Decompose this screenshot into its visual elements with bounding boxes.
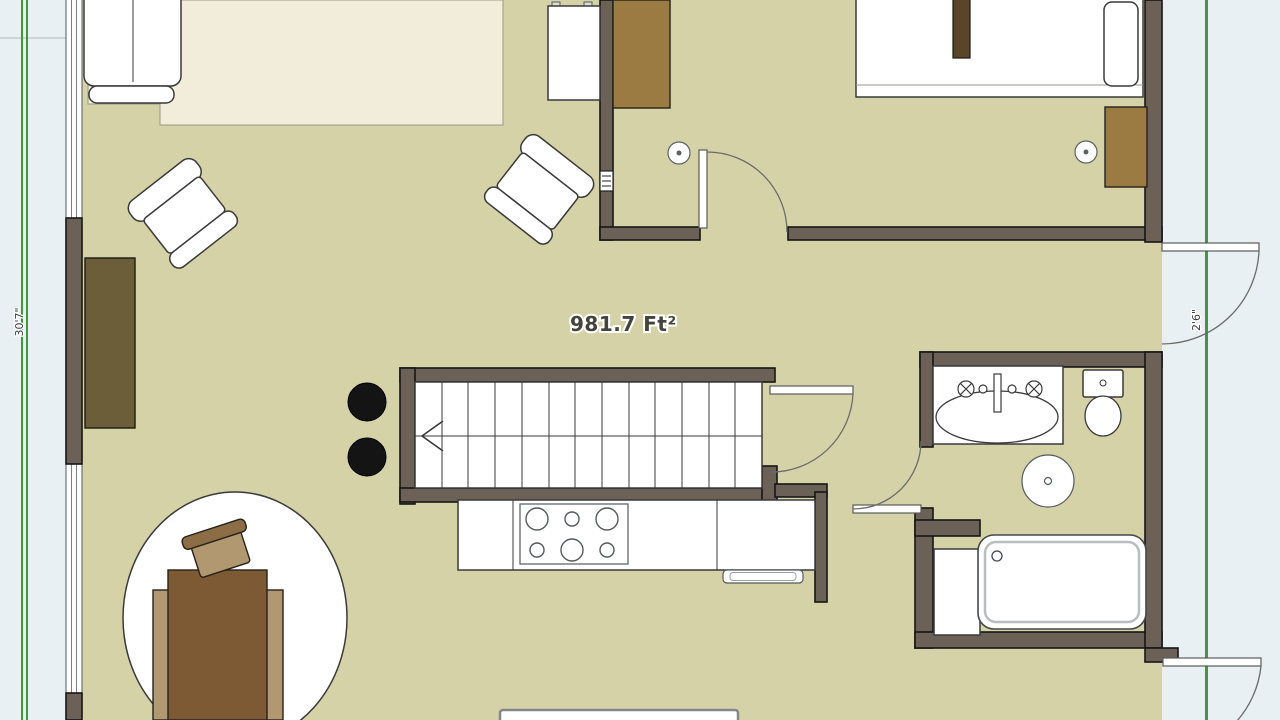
wall-bath-left-upper[interactable] (920, 352, 933, 447)
console-table[interactable] (548, 2, 600, 100)
pillow (1104, 2, 1138, 86)
bottom-table[interactable] (500, 710, 738, 720)
staircase[interactable] (415, 382, 762, 488)
bar-stool[interactable] (348, 438, 386, 476)
bathtub[interactable] (978, 535, 1146, 629)
bookshelf[interactable] (85, 258, 135, 428)
floorplan-drawing: 981.7 Ft² 30'7" 2'6" (0, 0, 1280, 720)
bathroom-cabinet[interactable] (934, 549, 980, 635)
kitchen-counter[interactable] (458, 500, 815, 570)
wall-bath-top[interactable] (920, 352, 1162, 367)
dresser[interactable] (613, 0, 670, 108)
window-lower[interactable] (66, 464, 82, 693)
property-line-right (1205, 0, 1208, 720)
nightstand[interactable] (1105, 107, 1147, 187)
light-switch[interactable] (600, 171, 613, 191)
ceiling-light[interactable] (668, 142, 690, 164)
bed[interactable] (856, 0, 1143, 97)
window-upper[interactable] (66, 0, 82, 218)
headboard (953, 0, 970, 58)
toilet[interactable] (1083, 370, 1123, 436)
wall-bedroom-bottom-a[interactable] (600, 227, 700, 240)
wall-bath-right[interactable] (1145, 352, 1162, 648)
sofa[interactable] (84, 0, 181, 103)
cooktop[interactable] (520, 504, 628, 564)
wall-stair-left[interactable] (400, 368, 415, 504)
floor-drain[interactable] (1022, 455, 1074, 507)
dimension-label-left: 30'7" (13, 307, 26, 336)
wall-bedroom-left[interactable] (600, 0, 613, 240)
room-area-label: 981.7 Ft² (570, 312, 677, 336)
wall-left-mid[interactable] (66, 218, 82, 464)
wall-bath-step[interactable] (915, 520, 980, 536)
dimension-label-right: 2'6" (1190, 309, 1203, 331)
floorplan-canvas: 981.7 Ft² 30'7" 2'6" (0, 0, 1280, 720)
wall-kitchen-right[interactable] (815, 492, 827, 602)
kitchen-sink[interactable] (723, 570, 803, 583)
desk[interactable] (153, 570, 283, 720)
bar-stool[interactable] (348, 383, 386, 421)
wall-stair-top[interactable] (400, 368, 775, 382)
wall-left-bottom[interactable] (66, 693, 82, 720)
vanity-sink[interactable] (933, 366, 1063, 444)
ceiling-light[interactable] (1075, 141, 1097, 163)
wall-bedroom-bottom-b[interactable] (788, 227, 1162, 240)
